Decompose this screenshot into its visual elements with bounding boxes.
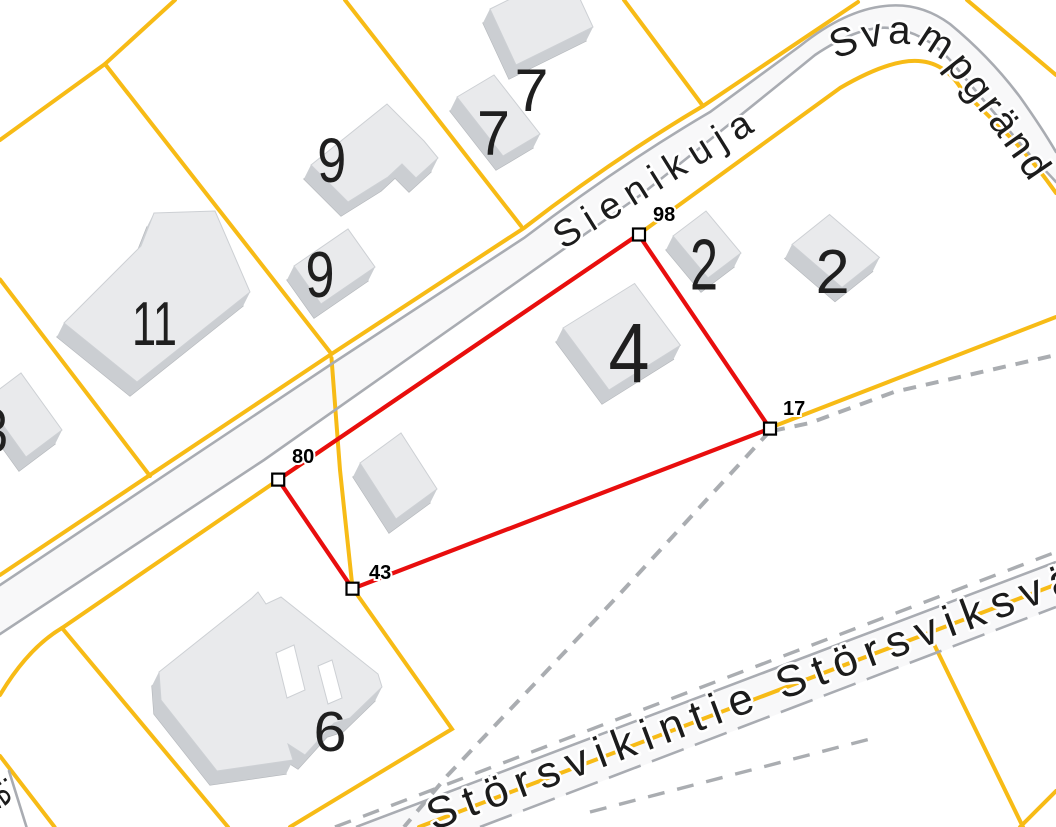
svg-text:6: 6: [314, 700, 347, 764]
svg-text:11: 11: [132, 290, 177, 359]
svg-text:17: 17: [783, 398, 805, 420]
svg-text:7: 7: [477, 99, 510, 169]
svg-text:2: 2: [690, 226, 718, 306]
svg-text:9: 9: [317, 126, 346, 196]
svg-text:4: 4: [609, 306, 650, 400]
svg-text:98: 98: [653, 204, 675, 226]
svg-text:3: 3: [0, 397, 8, 466]
svg-text:2: 2: [816, 238, 850, 307]
svg-text:9: 9: [306, 238, 335, 311]
svg-text:7: 7: [515, 57, 549, 124]
svg-text:43: 43: [369, 562, 391, 584]
svg-text:80: 80: [292, 446, 314, 468]
